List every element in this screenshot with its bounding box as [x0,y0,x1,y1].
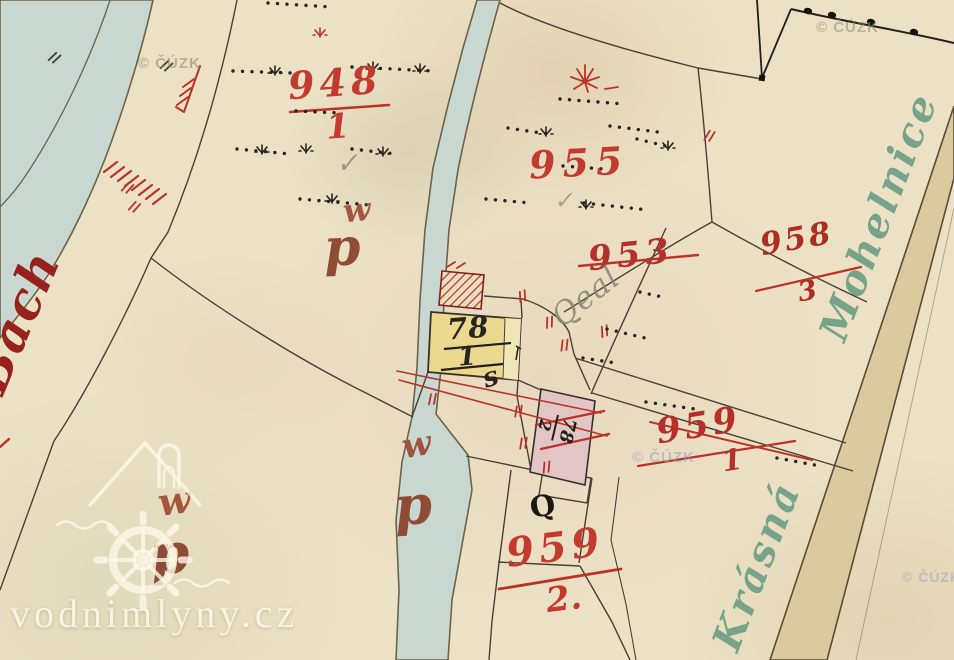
dotted-rows [233,3,815,465]
parcel-label-955: 955 [528,141,630,184]
river [0,0,153,338]
building-label-78-2: 78 2 [532,406,579,450]
parcel-label-959-2-numerator: 959 [504,522,607,574]
map-canvas[interactable]: 948 1 955 958 3 953 959 1 959 2. 78 1 s … [0,0,954,660]
check-mark-1: ✓ [335,149,360,178]
building-label-78-1-numerator: 78 [446,313,490,345]
check-mark-2: ✓ [553,189,574,214]
hatched-mill-building [439,271,484,309]
cuzk-watermark-1: © ČÚZK [138,56,201,71]
parcel-label-958-numerator: 958 [758,218,836,261]
land-use-p-1: p [323,221,361,274]
mill-race [396,0,500,660]
building-label-78-1-denominator: 1 [457,343,477,370]
building-label-78-2-denominator: 2 [535,418,553,432]
logo-water-wave-left [57,522,111,529]
parcel-label-948-numerator: 948 [287,61,384,105]
red-ink-marks [0,28,861,589]
buildings [428,271,595,485]
parcel-label-948-denominator: 1 [325,109,351,145]
land-use-p-3: p [148,525,191,584]
cuzk-watermark-4: © ČÚZK [902,570,954,584]
pencil-annotation: Qeal [547,262,626,333]
village-name-krasna: Krásná [707,476,808,656]
land-use-w-1: w [341,193,372,228]
building-label-78-2-numerator: 78 [555,416,578,444]
logo-mill-wheel [113,530,173,590]
logo-window [164,467,174,487]
parcel-label-959-1-denominator: 1 [720,445,744,477]
parcel-label-953-struck: 953 [586,234,675,277]
land-use-p-2: p [392,477,433,534]
road [770,106,954,660]
parcel-label-959-1-numerator: 959 [654,402,743,450]
spring-burst-symbol [571,65,599,92]
stream-name-bach: Bach [0,243,68,400]
map-geometry [0,0,954,660]
yellow-building-78-1 [428,312,521,380]
village-name-mohelnice: Mohelnice [814,87,945,346]
land-use-w-2: w [399,426,434,465]
cuzk-watermark-3: © ČÚZK [632,450,695,465]
boundary-lines [0,0,867,660]
land-use-w-3: w [156,480,194,522]
logo-tower [159,445,179,487]
site-watermark-text: vodnimlyny.cz [10,594,298,634]
parcel-label-958-denominator: 3 [796,277,819,307]
watermill-logo-watermark [55,425,265,610]
marked-border [757,0,954,81]
logo-water-wave-right [175,580,229,587]
parcel-label-959-2-denominator: 2. [544,580,583,618]
river-crossing-ticks [49,51,173,72]
logo-house-roof [90,443,200,505]
stable-mark: s [479,362,502,392]
well-symbol: Q [528,490,558,523]
cuzk-watermark-2: © ČÚZK [816,20,879,35]
plant-tuft-symbols [255,62,675,209]
